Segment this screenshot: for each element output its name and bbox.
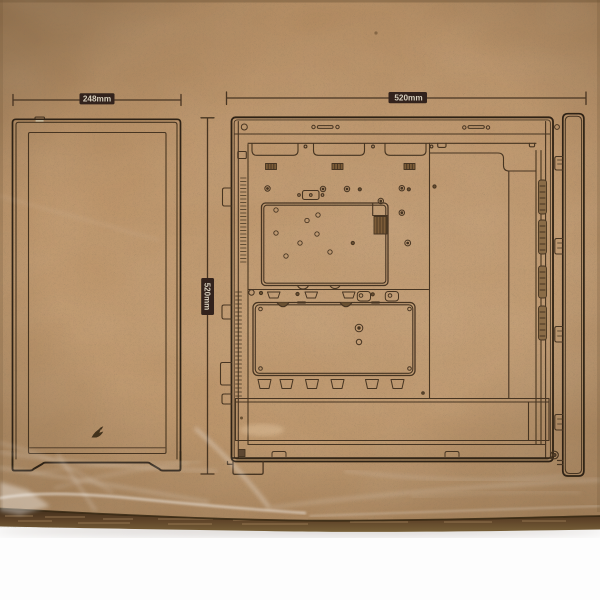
svg-text:248mm: 248mm (83, 95, 111, 104)
svg-text:520mm: 520mm (202, 283, 211, 311)
svg-text:520mm: 520mm (394, 93, 422, 102)
